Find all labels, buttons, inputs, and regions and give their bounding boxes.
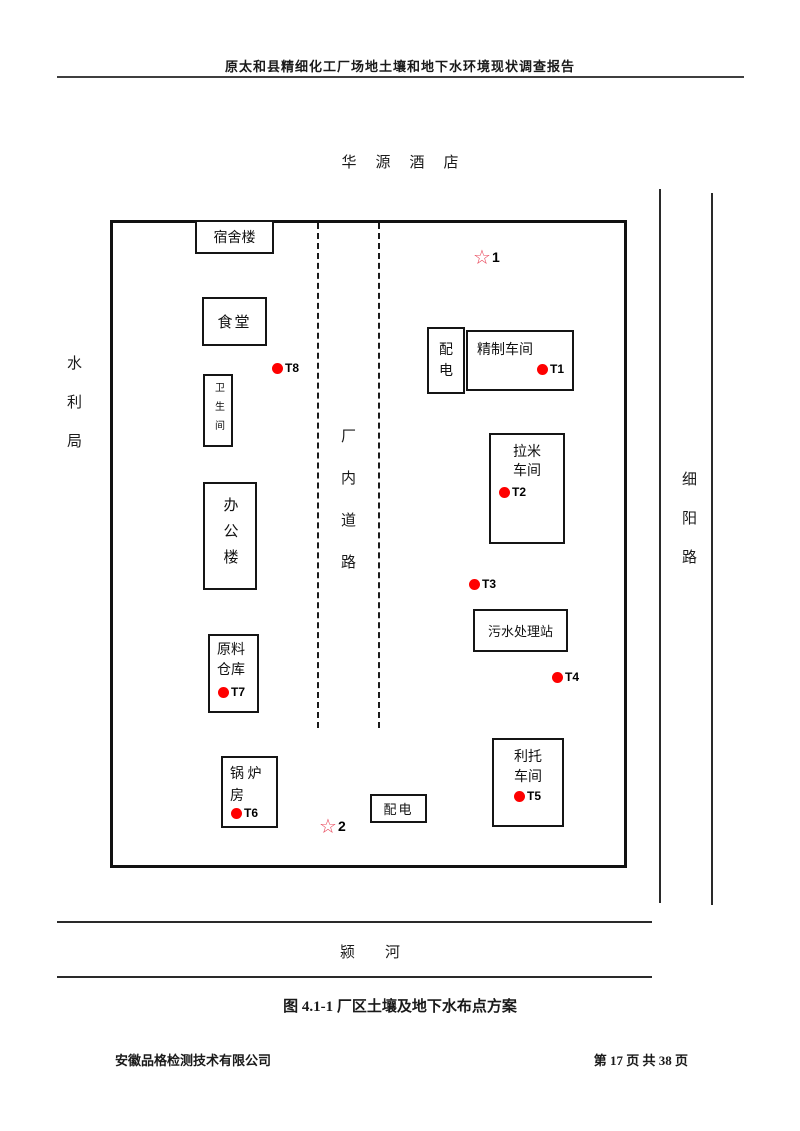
building-power-distribution-bottom: 配电 (370, 794, 427, 823)
north-neighbor-label: 华源酒店 (0, 151, 800, 172)
building-lituo-workshop: 利托 车间 (492, 738, 564, 827)
sample-dot-icon (499, 487, 510, 498)
building-dormitory: 宿舍楼 (195, 220, 274, 254)
road-dashed-line-right (378, 223, 380, 728)
soil-point-T5: T5 (514, 789, 541, 803)
sample-dot-icon (514, 791, 525, 802)
internal-road-label: 厂内道路 (337, 428, 358, 596)
sample-dot-icon (537, 364, 548, 375)
building-power-distribution-top: 配 电 (427, 327, 465, 394)
building-refining-workshop: 精制车间 (466, 330, 574, 391)
building-canteen: 食堂 (202, 297, 267, 346)
sample-dot-icon (272, 363, 283, 374)
groundwater-point-1: ☆ 1 (473, 247, 500, 267)
star-icon: ☆ (319, 816, 337, 836)
soil-point-T2: T2 (499, 485, 526, 499)
building-office: 办公楼 (220, 497, 241, 575)
sample-dot-icon (218, 687, 229, 698)
groundwater-point-2: ☆ 2 (319, 816, 346, 836)
soil-point-T1: T1 (537, 362, 564, 376)
report-page: 原太和县精细化工厂场地土壤和地下水环境现状调查报告 华源酒店 水利局 厂内道路 … (0, 0, 800, 1131)
road-dashed-line-left (317, 223, 319, 728)
soil-point-T3: T3 (469, 577, 496, 591)
east-neighbor-label: 细阳路 (678, 471, 699, 588)
building-toilet: 卫生间 (211, 382, 226, 439)
soil-point-T6: T6 (231, 806, 258, 820)
footer-page-number: 第 17 页 共 38 页 (594, 1050, 688, 1069)
building-material-warehouse: 原料 仓库 (208, 634, 259, 713)
star-icon: ☆ (473, 247, 491, 267)
west-neighbor-label: 水利局 (63, 355, 84, 472)
sample-dot-icon (231, 808, 242, 819)
east-road-line-right (711, 193, 713, 905)
soil-point-T4: T4 (552, 670, 579, 684)
east-road-line-left (659, 189, 661, 903)
building-sewage-station: 污水处理站 (473, 609, 568, 652)
sample-dot-icon (552, 672, 563, 683)
page-title: 原太和县精细化工厂场地土壤和地下水环境现状调查报告 (0, 56, 800, 75)
header-rule (57, 76, 744, 78)
south-neighbor-label: 颍河 (340, 941, 430, 962)
soil-point-T8: T8 (272, 361, 299, 375)
sample-dot-icon (469, 579, 480, 590)
figure-caption: 图 4.1-1 厂区土壤及地下水布点方案 (0, 995, 800, 1016)
soil-point-T7: T7 (218, 685, 245, 699)
river-line-bottom (57, 976, 652, 978)
river-line-top (57, 921, 652, 923)
footer-company: 安徽品格检测技术有限公司 (115, 1050, 271, 1069)
